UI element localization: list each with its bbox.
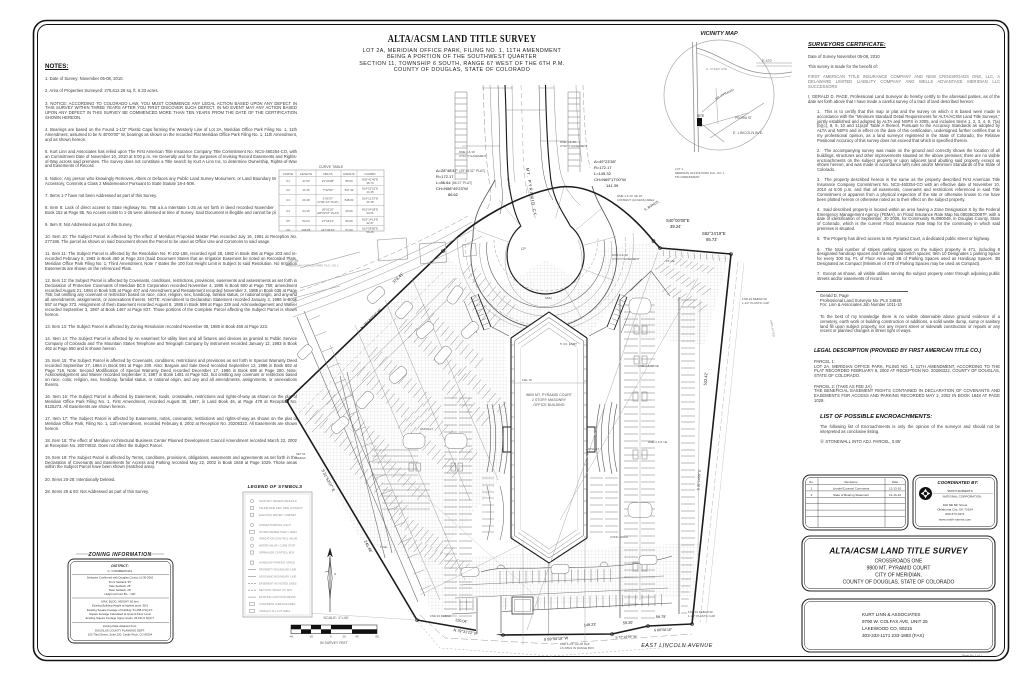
svg-text:STREET/PARKING LIGHT: STREET/PARKING LIGHT	[259, 523, 291, 527]
svg-text:PEORIA ST.: PEORIA ST.	[735, 116, 752, 120]
svg-text:DME 2 & 8' UE: DME 2 & 8' UE	[648, 440, 667, 444]
svg-text:27°24'12": 27°24'12"	[322, 219, 334, 223]
svg-text:KURT LINN & ASSOCIATES: KURT LINN & ASSOCIATES	[862, 612, 920, 617]
svg-text:EAST LINCOLN AVENUE: EAST LINCOLN AVENUE	[641, 643, 713, 649]
svg-text:Zoning Data obtained from:: Zoning Data obtained from:	[103, 624, 137, 628]
svg-text:46.70: 46.70	[366, 181, 374, 185]
svg-text:FFE: 92: FFE: 92	[522, 378, 532, 382]
svg-text:298.85: 298.85	[302, 228, 311, 232]
svg-text:100 NE 5th Street: 100 NE 5th Street	[943, 503, 968, 507]
svg-text:C2: C2	[286, 188, 290, 192]
svg-text:20: 20	[342, 635, 346, 639]
svg-text:DISTRICT:: DISTRICT:	[111, 564, 129, 568]
svg-text:LOT 2B: LOT 2B	[288, 259, 298, 263]
svg-text:120.04': 120.04'	[455, 618, 468, 624]
svg-text:Height at Front B.L.: 100': Height at Front B.L.: 100'	[104, 592, 135, 596]
svg-text:547.49: 547.49	[345, 188, 354, 192]
svg-text:LAKEWOOD CO, 80215: LAKEWOOD CO, 80215	[862, 626, 912, 631]
svg-text:Δ=28°48'47" (29°44'32" PLAT): Δ=28°48'47" (29°44'32" PLAT)	[436, 168, 485, 173]
svg-text:20.18: 20.18	[302, 198, 310, 202]
svg-text:7°32'50": 7°32'50"	[323, 188, 334, 192]
svg-text:S40°00'00"E: S40°00'00"E	[666, 218, 690, 223]
svg-text:C1: C1	[286, 179, 290, 183]
svg-text:59.75': 59.75'	[656, 615, 667, 619]
svg-text:EXISTING CONTOUR MINOR: EXISTING CONTOUR MINOR	[259, 595, 296, 599]
svg-text:12-13-10: 12-13-10	[889, 487, 901, 491]
svg-text:Setbacks Confirmed with Dougla: Setbacks Confirmed with Douglas County 1…	[87, 576, 154, 580]
svg-text:OFFICE BUILDING: OFFICE BUILDING	[533, 403, 564, 407]
svg-text:NATIONAL CORPORATION: NATIONAL CORPORATION	[943, 495, 982, 499]
svg-text:374.41': 374.41'	[391, 271, 404, 284]
svg-text:LS 23521 IN RANGE BOX: LS 23521 IN RANGE BOX	[560, 646, 594, 650]
svg-text:Oklahoma City, OK 73104: Oklahoma City, OK 73104	[937, 507, 973, 511]
svg-text:Δ=49°23'38": Δ=49°23'38"	[594, 159, 617, 164]
svg-text:ASPHALT ALL LOT AREA: ASPHALT ALL LOT AREA	[259, 609, 290, 613]
svg-text:FND #4 REBAR: FND #4 REBAR	[430, 614, 451, 618]
svg-text:www.smith-roberts.com: www.smith-roberts.com	[939, 517, 972, 521]
svg-text:LEGEND OF SYMBOLS: LEGEND OF SYMBOLS	[248, 484, 303, 489]
svg-text:UTILITY EASEMENT: UTILITY EASEMENT	[459, 154, 487, 158]
svg-text:42.37: 42.37	[366, 221, 374, 225]
svg-text:CURVE: CURVE	[283, 172, 293, 176]
svg-text:COUNTY OF DOUGLAS, STATE OF CO: COUNTY OF DOUGLAS, STATE OF COLORADO	[843, 580, 955, 586]
svg-text:303-233-1171 233-1883 (FAX): 303-233-1171 233-1883 (FAX)	[862, 633, 924, 638]
svg-text:52.64: 52.64	[302, 219, 310, 223]
svg-text:47.03: 47.03	[302, 179, 310, 183]
svg-text:REBAR: REBAR	[296, 456, 306, 460]
svg-text:S 02°14'59" E: S 02°14'59" E	[696, 469, 702, 491]
svg-text:ALTA/ACSM LAND TITLE SURVEY: ALTA/ACSM LAND TITLE SURVEY	[828, 547, 969, 556]
svg-text:Date: Date	[892, 480, 899, 484]
svg-text:1-1/2" PLASTIC CAP: 1-1/2" PLASTIC CAP	[742, 301, 769, 305]
svg-text:Revisions: Revisions	[844, 480, 858, 484]
svg-text:S82°24'19"E: S82°24'19"E	[702, 231, 726, 236]
svg-text:20.18: 20.18	[366, 200, 374, 204]
svg-text:9800 MT. PYRAMID COURT: 9800 MT. PYRAMID COURT	[867, 566, 931, 572]
svg-text:522.42': 522.42'	[703, 372, 709, 386]
svg-text:EASEMENT AS NOTED LINES: EASEMENT AS NOTED LINES	[259, 581, 297, 585]
svg-text:39.24': 39.24'	[670, 224, 681, 229]
svg-text:IN SURVEY FEET: IN SURVEY FEET	[320, 641, 348, 645]
svg-text:15' UE: 15' UE	[666, 259, 675, 263]
svg-text:E-470: E-470	[762, 59, 772, 63]
svg-text:SPRINKLER CONTROL BOX: SPRINKLER CONTROL BOX	[259, 551, 295, 555]
svg-text:CH=N69°17'00"W: CH=N69°17'00"W	[594, 177, 626, 182]
svg-text:SECTION / RIGHT OF WAY: SECTION / RIGHT OF WAY	[259, 588, 293, 592]
svg-text:85.00: 85.00	[345, 179, 353, 183]
svg-text:23°40'28": 23°40'28"	[322, 179, 334, 183]
svg-text:59.30': 59.30'	[623, 621, 634, 626]
svg-text:CITY OF MERIDIAN,: CITY OF MERIDIAN,	[875, 573, 922, 579]
svg-text:1-1/2" PLASTIC CAP: 1-1/2" PLASTIC CAP	[688, 614, 715, 618]
svg-text:TELEPHONE PED. FIRE HYDRANT: TELEPHONE PED. FIRE HYDRANT	[259, 506, 303, 510]
svg-text:CHORD: CHORD	[365, 172, 377, 176]
svg-text:ZONING INFORMATION: ZONING INFORMATION	[88, 552, 152, 558]
svg-text:SCALE: 1"=40': SCALE: 1"=40'	[323, 616, 348, 620]
svg-text:C5: C5	[286, 219, 290, 223]
svg-text:CH=N58°49'23"W: CH=N58°49'23"W	[436, 186, 468, 191]
svg-text:R=172.17: R=172.17	[594, 165, 612, 170]
svg-text:Lender/Counsel Comments: Lender/Counsel Comments	[833, 487, 870, 491]
svg-text:No.: No.	[809, 480, 814, 484]
svg-text:SITE: SITE	[697, 114, 704, 118]
svg-text:800-373-3271: 800-373-3271	[945, 512, 965, 516]
svg-text:247°46'32": 247°46'32"	[321, 228, 335, 232]
svg-text:12-16-10: 12-16-10	[889, 493, 901, 497]
svg-text:ASPHALT: ASPHALT	[586, 447, 599, 451]
svg-text:23.61: 23.61	[366, 211, 374, 215]
svg-text:95.73': 95.73'	[706, 237, 717, 242]
svg-text:PROPERTY BOUNDARY LINE: PROPERTY BOUNDARY LINE	[259, 568, 296, 572]
svg-text:-40: -40	[289, 635, 294, 639]
svg-text:C4: C4	[286, 209, 290, 213]
svg-text:HANDICAP PARKING SPACE: HANDICAP PARKING SPACE	[259, 561, 295, 565]
svg-text:SMH: SMH	[545, 296, 552, 300]
svg-text:0: 0	[330, 635, 332, 639]
svg-text:5' UE: 5' UE	[380, 545, 387, 549]
svg-text:100 Third Street, Suite 220, C: 100 Third Street, Suite 220, Castle Rock…	[88, 633, 153, 637]
svg-text:UTILITY EASEMENT: UTILITY EASEMENT	[560, 144, 588, 148]
svg-text:S 89°56'18" W: S 89°56'18" W	[544, 636, 569, 641]
svg-text:STORM SEWER INLET / AREA: STORM SEWER INLET / AREA	[259, 530, 297, 534]
svg-text:5' CO. ESMT: 5' CO. ESMT	[560, 342, 577, 346]
svg-text:548.00: 548.00	[345, 198, 354, 202]
svg-text:90.00: 90.00	[345, 219, 353, 223]
svg-text:S 89°56'18": S 89°56'18"	[654, 628, 673, 633]
svg-text:86.62: 86.62	[448, 192, 459, 197]
svg-text:60' ROW: 60' ROW	[506, 178, 512, 191]
svg-text:SANITARY SEWER MANHOLE: SANITARY SEWER MANHOLE	[259, 499, 297, 503]
svg-text:Sheet No. 1 of 1: Sheet No. 1 of 1	[962, 654, 983, 658]
svg-text:141.39: 141.39	[606, 183, 619, 188]
svg-text:L=145.32: L=145.32	[594, 171, 612, 176]
svg-text:13.15: 13.15	[302, 188, 310, 192]
svg-text:25.00: 25.00	[345, 209, 353, 213]
svg-text:C3: C3	[286, 198, 290, 202]
svg-text:WATER VALVE / CURB STOP: WATER VALVE / CURB STOP	[259, 544, 295, 548]
svg-text:E. OTERO AVE: E. OTERO AVE	[706, 67, 727, 71]
svg-text:N: N	[334, 572, 336, 576]
svg-text:IRRIGATION CONTROL VALVE: IRRIGATION CONTROL VALVE	[259, 537, 297, 541]
svg-text:24.15: 24.15	[302, 209, 310, 213]
svg-text:C6: C6	[286, 228, 290, 232]
svg-text:MT. PYRAMID: MT. PYRAMID	[715, 87, 736, 101]
svg-text:LENGTH: LENGTH	[300, 172, 312, 176]
svg-text:R=172.17: R=172.17	[436, 174, 454, 179]
svg-text:CP: CP	[521, 247, 526, 251]
svg-text:C: COMMERCIAL: C: COMMERCIAL	[108, 569, 133, 573]
svg-text:SMITH-ROBERTS: SMITH-ROBERTS	[947, 489, 973, 493]
svg-text:(28°02'07" PLAT): (28°02'07" PLAT)	[317, 211, 339, 215]
svg-text:13.15: 13.15	[366, 190, 374, 194]
svg-text:DELTA: DELTA	[323, 172, 332, 176]
svg-text:ELECTRIC METER / CABINET: ELECTRIC METER / CABINET	[259, 513, 297, 517]
svg-text:56.26: 56.26	[366, 230, 374, 234]
svg-text:UNPLATTED: UNPLATTED	[769, 319, 776, 338]
svg-text:9800 MT. PYRAMID COURT: 9800 MT. PYRAMID COURT	[526, 393, 573, 397]
svg-text:5TH AMENDMENT: 5TH AMENDMENT	[675, 175, 700, 179]
svg-text:MERIDIAN OFFICE PARK FLG. NO.1: MERIDIAN OFFICE PARK FLG. NO.1	[288, 264, 339, 268]
svg-text:-20: -20	[309, 635, 314, 639]
svg-text:CURVE TABLE: CURVE TABLE	[319, 165, 344, 169]
svg-text:DME 2 & 20' UE: DME 2 & 20' UE	[638, 364, 659, 368]
svg-text:RADIUS: RADIUS	[343, 172, 354, 176]
svg-text:CONCRETE SURFACE AREA: CONCRETE SURFACE AREA	[259, 602, 296, 606]
svg-text:149.23': 149.23'	[584, 623, 597, 628]
svg-text:VICINITY MAP: VICINITY MAP	[700, 31, 738, 37]
svg-text:State of Bearing Statement: State of Bearing Statement	[833, 493, 869, 497]
svg-text:E. LINCOLN AVE.: E. LINCOLN AVE.	[733, 131, 763, 135]
svg-text:UTILITY EASEMENT: UTILITY EASEMENT	[612, 257, 640, 261]
svg-text:ASPHALT: ASPHALT	[420, 427, 433, 431]
svg-text:L=86.64 (86.37' PLAT): L=86.64 (86.37' PLAT)	[436, 180, 472, 185]
svg-text:57.00: 57.00	[345, 228, 353, 232]
svg-text:40: 40	[355, 635, 359, 639]
svg-text:9790 W. COLFAX AVE, UNIT 25: 9790 W. COLFAX AVE, UNIT 25	[862, 619, 928, 624]
svg-text:CONC. WALK: CONC. WALK	[610, 535, 628, 539]
svg-text:COORDINATED BY:: COORDINATED BY:	[938, 480, 979, 485]
svg-text:(2°06' 04" PLAT): (2°06' 04" PLAT)	[317, 200, 338, 204]
svg-text:Existing Square Footage Upper: Existing Square Footage Upper levels: 25…	[86, 616, 155, 620]
svg-text:2 STORY MASONRY: 2 STORY MASONRY	[532, 398, 567, 402]
svg-text:CROSSROADS ONE: CROSSROADS ONE	[875, 559, 923, 565]
svg-text:80: 80	[375, 635, 379, 639]
svg-text:ADJOINING BOUNDARY LINE: ADJOINING BOUNDARY LINE	[259, 574, 296, 578]
svg-text:CONSENT (ACCESS) AREA: CONSENT (ACCESS) AREA	[617, 198, 654, 202]
